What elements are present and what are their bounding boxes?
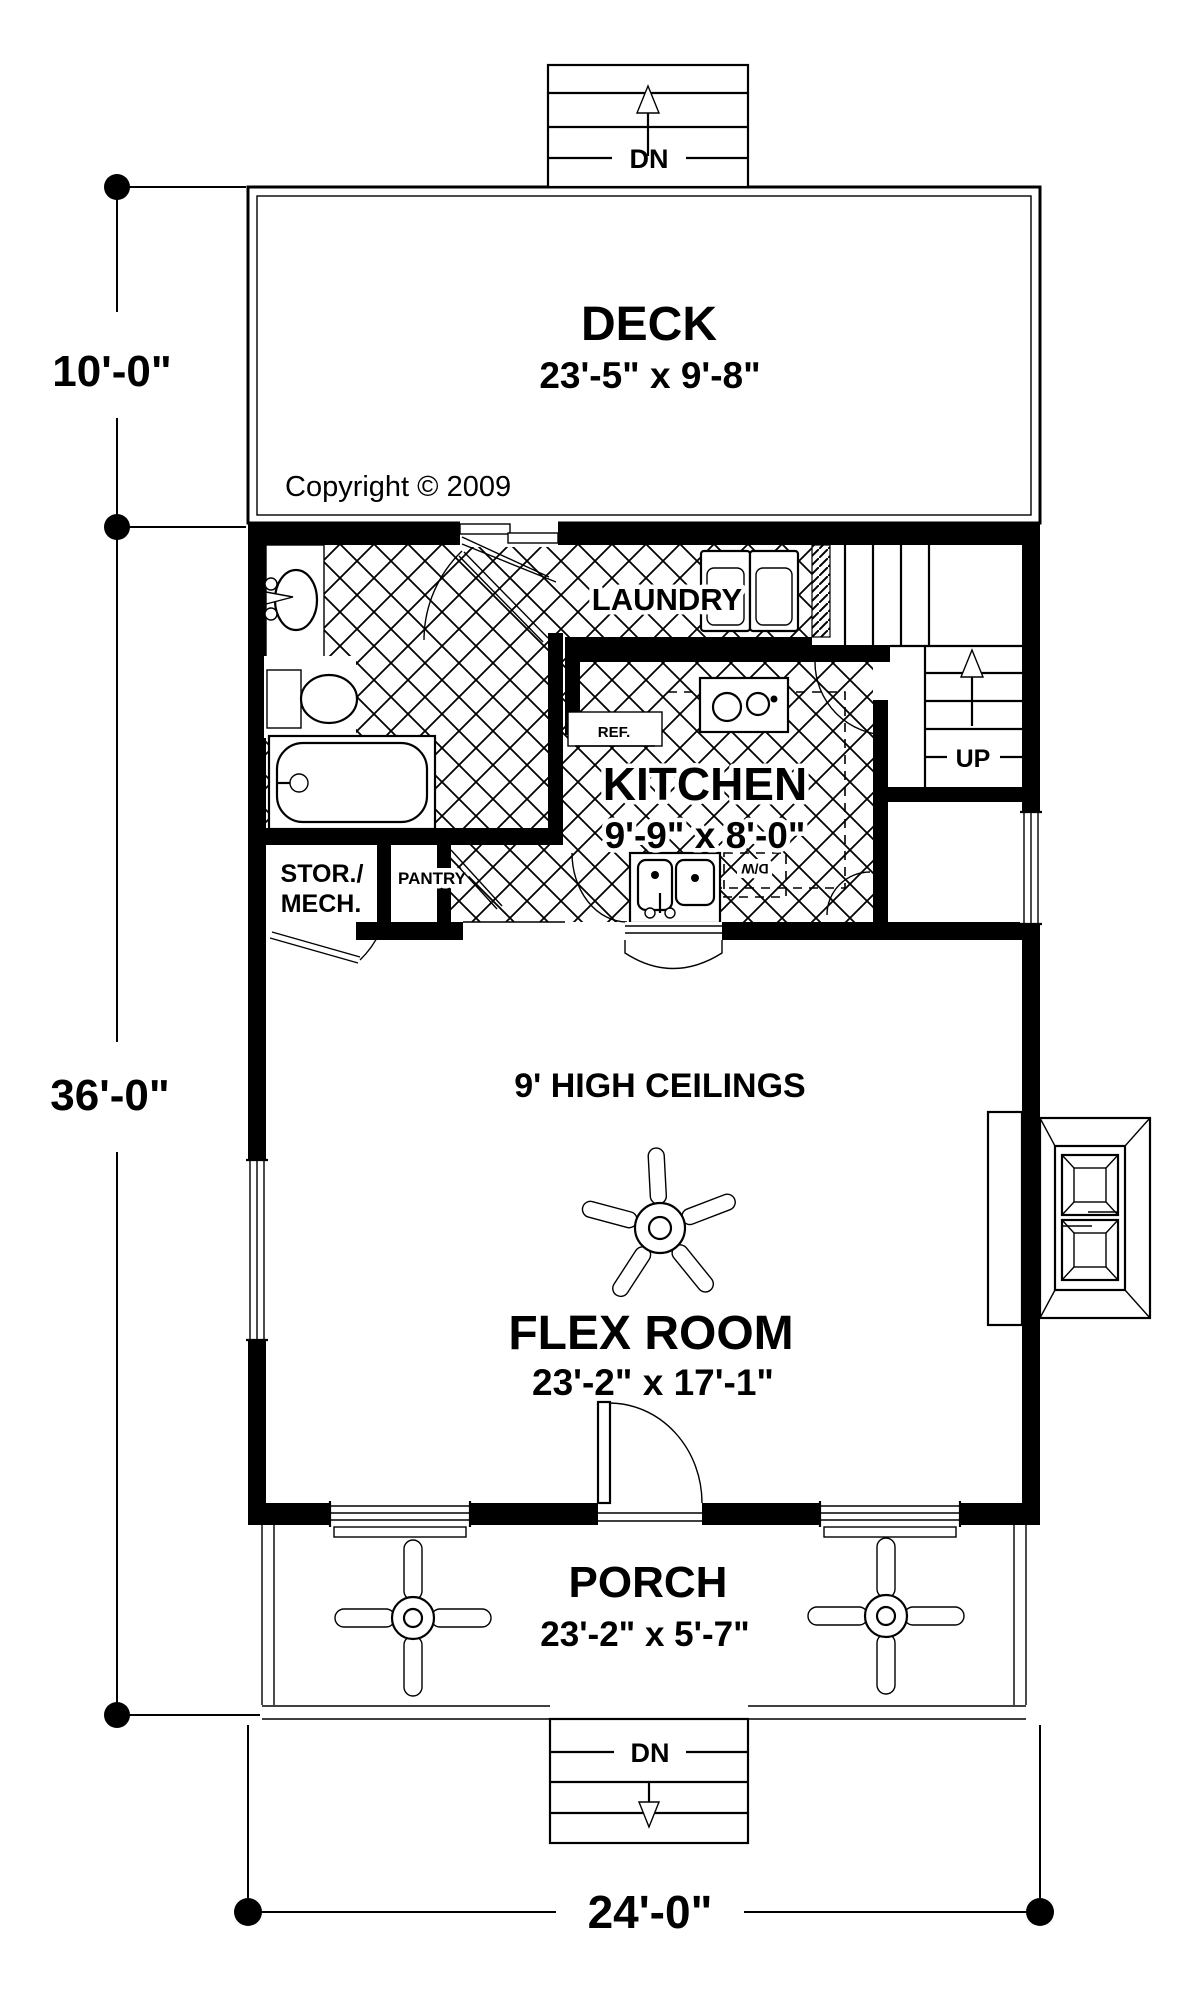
flex-room-ceiling-fan-icon bbox=[581, 1148, 738, 1300]
dishwasher-label: D/W bbox=[741, 861, 769, 877]
left-wall-window bbox=[246, 1160, 268, 1340]
storage-mech-room: STOR./ MECH. bbox=[266, 845, 377, 922]
front-window-left bbox=[330, 1501, 470, 1537]
refrigerator-label: REF. bbox=[598, 724, 631, 741]
interior-stairs-up-label: UP bbox=[956, 745, 991, 773]
bathroom-toilet bbox=[264, 656, 357, 738]
storage-room-label-line1: STOR./ bbox=[281, 860, 364, 888]
dimension-deck-depth-label: 10'-0" bbox=[52, 347, 171, 396]
bathroom-tub bbox=[269, 736, 435, 829]
porch-stairs: DN bbox=[550, 1719, 748, 1843]
deck-size-label: 23'-5" x 9'-8" bbox=[539, 355, 760, 396]
pantry-label: PANTRY bbox=[398, 869, 467, 888]
kitchen-bay-window bbox=[625, 922, 722, 969]
flex-room-label: FLEX ROOM bbox=[508, 1307, 793, 1360]
kitchen-range bbox=[700, 678, 788, 732]
deck-stairs: DN bbox=[548, 65, 748, 187]
deck-label: DECK bbox=[581, 298, 717, 351]
floor-plan-drawing: 10'-0" 36'-0" 24'-0" DECK 23'-5" x 9'-8"… bbox=[0, 0, 1200, 2000]
porch-stairs-dn-label: DN bbox=[631, 1738, 670, 1768]
flex-room: 9' HIGH CEILINGS FLEX ROOM 23'-2" x 17'-… bbox=[270, 932, 806, 1403]
flex-room-size-label: 23'-2" x 17'-1" bbox=[532, 1362, 774, 1403]
deck: DECK 23'-5" x 9'-8" Copyright © 2009 bbox=[248, 187, 1040, 523]
kitchen-sink bbox=[630, 853, 720, 923]
laundry-label: LAUNDRY bbox=[592, 582, 743, 617]
floor-plan-page: 10'-0" 36'-0" 24'-0" DECK 23'-5" x 9'-8"… bbox=[0, 0, 1200, 2000]
interior-stairs-up-arrow-icon bbox=[961, 650, 983, 677]
ceiling-note-label: 9' HIGH CEILINGS bbox=[514, 1067, 805, 1105]
dimension-left-deck: 10'-0" bbox=[52, 174, 246, 540]
copyright-text: Copyright © 2009 bbox=[285, 471, 511, 503]
kitchen-size-label: 9'-9" x 8'-0" bbox=[605, 815, 806, 856]
porch-fan-right-icon bbox=[808, 1538, 964, 1694]
right-wall-window bbox=[1020, 812, 1042, 924]
front-door bbox=[598, 1402, 702, 1527]
porch-label: PORCH bbox=[569, 1558, 728, 1607]
porch-size-label: 23'-2" x 5'-7" bbox=[540, 1615, 749, 1654]
fireplace bbox=[988, 1112, 1150, 1325]
porch: PORCH 23'-2" x 5'-7" bbox=[262, 1525, 1026, 1719]
kitchen-label: KITCHEN bbox=[603, 758, 807, 810]
dimension-house-depth-label: 36'-0" bbox=[50, 1071, 169, 1120]
porch-fan-left-icon bbox=[335, 1540, 491, 1696]
dimension-left-house: 36'-0" bbox=[50, 527, 260, 1728]
bathroom-vanity-sink bbox=[265, 545, 324, 657]
storage-room-label-line2: MECH. bbox=[281, 890, 362, 918]
front-window-right bbox=[820, 1501, 960, 1537]
dimension-house-width-label: 24'-0" bbox=[588, 1886, 713, 1938]
kitchen-refrigerator: REF. bbox=[568, 712, 662, 746]
